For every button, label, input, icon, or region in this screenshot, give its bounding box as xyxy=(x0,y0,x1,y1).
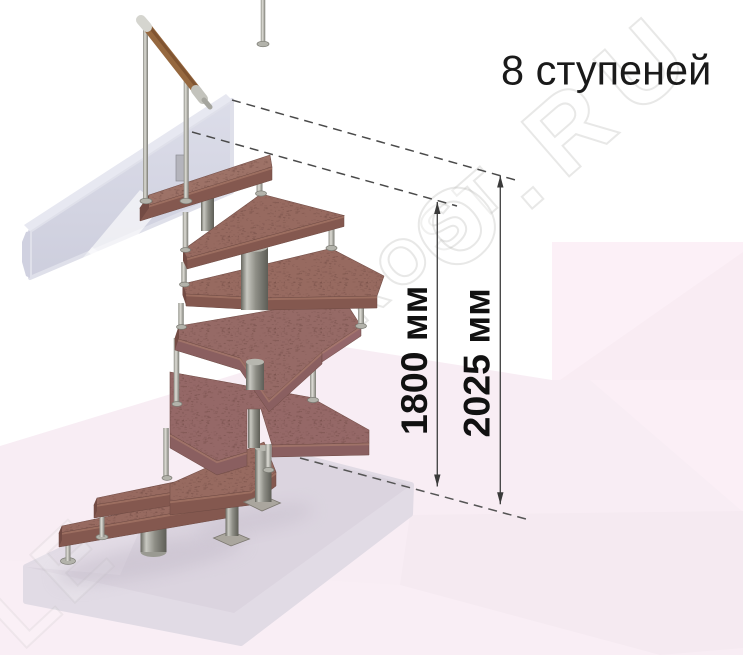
svg-text:2025 мм: 2025 мм xyxy=(456,288,498,437)
svg-text:8 ступеней: 8 ступеней xyxy=(501,47,711,94)
svg-text:1800 мм: 1800 мм xyxy=(393,286,435,435)
